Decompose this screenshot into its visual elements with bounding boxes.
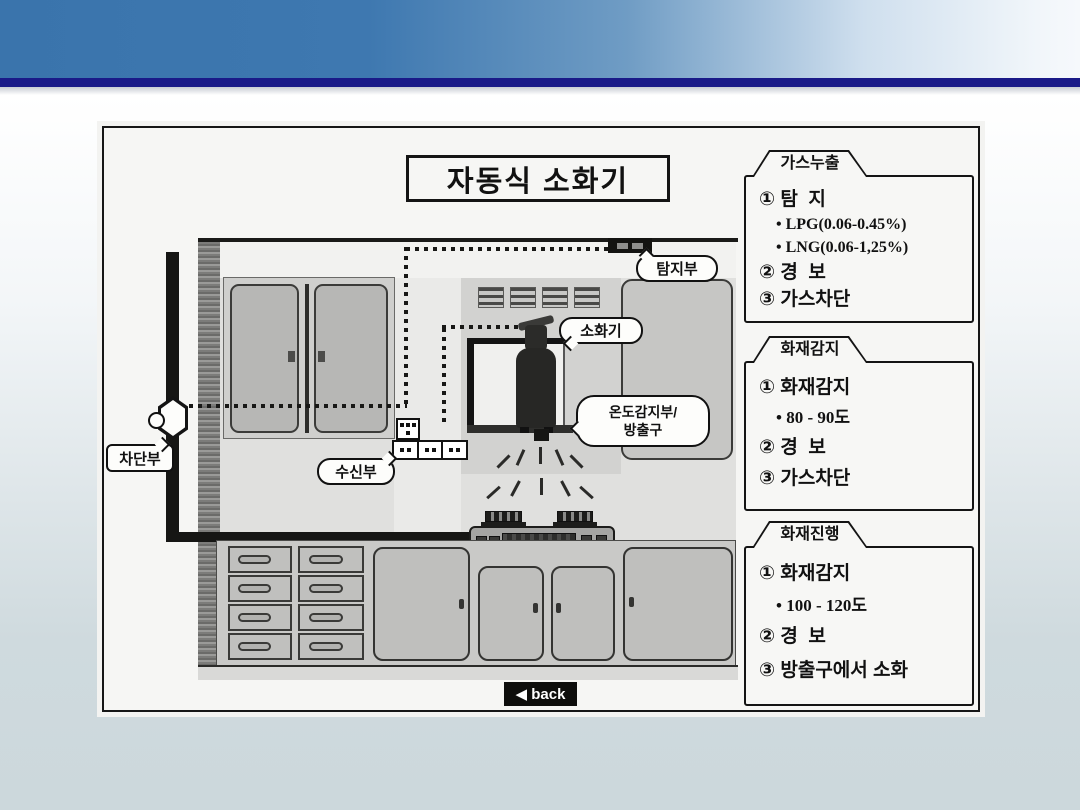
upper-cabinet-divider bbox=[305, 284, 309, 433]
panel-line: ② 경 보 bbox=[759, 259, 962, 286]
kitchen-top-edge bbox=[198, 238, 738, 242]
cabinet-handle bbox=[556, 603, 561, 613]
vent-grille bbox=[574, 287, 600, 308]
shutoff-valve-wheel bbox=[148, 412, 165, 429]
slide-title-box: 자동식 소화기 bbox=[406, 155, 670, 202]
panel-line: ③ 가스차단 bbox=[759, 463, 962, 494]
panel-fire-progress-tab: 화재진행 bbox=[752, 521, 868, 548]
wire-dotted-top bbox=[406, 247, 610, 251]
wire-dotted-valve bbox=[189, 404, 407, 408]
panel-fire-progress: 화재진행 ① 화재감지 • 100 - 120도 ② 경 보 ③ 방출구에서 소… bbox=[744, 521, 974, 706]
header-shadow bbox=[0, 87, 1080, 95]
vent-grille bbox=[542, 287, 568, 308]
upper-cabinet-right-door bbox=[314, 284, 388, 433]
receiver-mini-box bbox=[396, 418, 420, 440]
cabinet-handle bbox=[533, 603, 538, 613]
panel-line: ③ 방출구에서 소화 bbox=[759, 654, 962, 688]
wire-dotted-to-extinguisher bbox=[442, 325, 522, 329]
label-extinguisher: 소화기 bbox=[559, 317, 643, 344]
vent-grille bbox=[478, 287, 504, 308]
discharge-nozzle bbox=[534, 429, 549, 441]
header-divider-line bbox=[0, 78, 1080, 87]
back-button[interactable]: ◀ back bbox=[504, 682, 577, 706]
cabinet-handle bbox=[629, 597, 634, 607]
wire-dotted-vertical bbox=[404, 247, 408, 408]
panel-line: • LPG(0.06-0.45%) bbox=[759, 213, 962, 236]
under-stove-door-right bbox=[551, 566, 615, 661]
label-temp-sensor: 온도감지부/ 방출구 bbox=[576, 395, 710, 447]
under-stove-door-left bbox=[478, 566, 544, 661]
panel-line: • 80 - 90도 bbox=[759, 403, 962, 432]
fire-extinguisher-bottle bbox=[516, 348, 556, 428]
label-shutoff: 차단부 bbox=[106, 444, 174, 472]
bottle-foot bbox=[520, 427, 529, 433]
cabinet-handle bbox=[459, 599, 464, 609]
cabinet-handle bbox=[288, 351, 295, 362]
panel-line: • LNG(0.06-1,25%) bbox=[759, 236, 962, 259]
drawer-unit-2 bbox=[298, 546, 364, 660]
panel-fire-detect-tab: 화재감지 bbox=[752, 336, 868, 363]
gas-pipe-vertical bbox=[166, 252, 179, 540]
lower-cabinet-door bbox=[373, 547, 470, 661]
panel-fire-detect: 화재감지 ① 화재감지 • 80 - 90도 ② 경 보 ③ 가스차단 bbox=[744, 336, 974, 511]
kitchen-floor-strip bbox=[198, 665, 738, 680]
upper-cabinet-unit bbox=[223, 277, 395, 439]
vent-grille bbox=[510, 287, 536, 308]
diagram-frame: 자동식 소화기 bbox=[102, 126, 980, 712]
wire-dotted-vertical-2 bbox=[442, 328, 446, 422]
panel-gas-leak-tab: 가스누출 bbox=[752, 150, 868, 177]
header-banner bbox=[0, 0, 1080, 78]
cabinet-handle bbox=[318, 351, 325, 362]
stove-burner-right bbox=[557, 511, 593, 522]
stove-burner-left bbox=[485, 511, 522, 522]
panel-line: ① 화재감지 bbox=[759, 372, 962, 403]
lower-cabinet-base bbox=[216, 540, 736, 666]
label-detector: 탐지부 bbox=[636, 255, 718, 282]
panel-line: ① 탐 지 bbox=[759, 186, 962, 213]
lower-right-cabinet-door bbox=[623, 547, 733, 661]
panel-line: ② 경 보 bbox=[759, 432, 962, 463]
panel-line: ① 화재감지 bbox=[759, 557, 962, 591]
label-receiver: 수신부 bbox=[317, 458, 395, 485]
panel-line: • 100 - 120도 bbox=[759, 591, 962, 620]
panel-line: ② 경 보 bbox=[759, 620, 962, 654]
panel-line: ③ 가스차단 bbox=[759, 286, 962, 313]
scanned-slide: 자동식 소화기 bbox=[97, 121, 985, 717]
drawer-unit-1 bbox=[228, 546, 292, 660]
extinguisher-valve-head bbox=[525, 325, 547, 350]
slide-title: 자동식 소화기 bbox=[447, 158, 629, 200]
receiver-device bbox=[392, 440, 468, 460]
panel-gas-leak: 가스누출 ① 탐 지 • LPG(0.06-0.45%) • LNG(0.06-… bbox=[744, 150, 974, 323]
